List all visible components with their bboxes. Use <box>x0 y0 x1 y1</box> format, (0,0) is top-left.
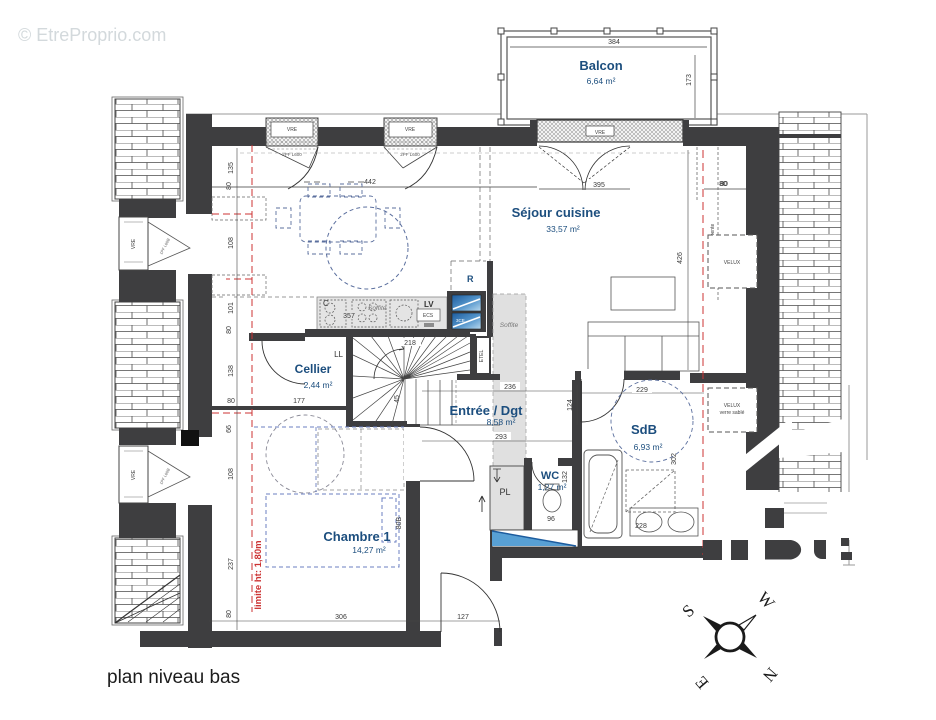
svg-text:6,93 m²: 6,93 m² <box>634 442 663 452</box>
svg-text:VRE: VRE <box>131 469 137 480</box>
svg-text:PL: PL <box>499 487 510 497</box>
svg-text:ETEL: ETEL <box>479 350 485 363</box>
svg-text:LL: LL <box>334 350 343 359</box>
svg-text:Soffite: Soffite <box>368 305 387 312</box>
svg-text:2,44 m²: 2,44 m² <box>304 380 333 390</box>
svg-text:SdB: SdB <box>631 422 657 437</box>
svg-text:426: 426 <box>677 252 684 264</box>
svg-text:124: 124 <box>567 399 574 411</box>
svg-text:Cellier: Cellier <box>295 362 332 376</box>
svg-text:237: 237 <box>228 558 235 570</box>
svg-text:108: 108 <box>228 237 235 249</box>
svg-text:132: 132 <box>562 471 569 483</box>
svg-text:VELUX: VELUX <box>724 260 741 266</box>
svg-text:Entrée / Dgt: Entrée / Dgt <box>450 403 524 418</box>
svg-text:VRE: VRE <box>405 127 416 133</box>
svg-text:Balcon: Balcon <box>579 58 622 73</box>
svg-text:8,58 m²: 8,58 m² <box>487 417 516 427</box>
svg-text:R: R <box>467 274 474 284</box>
svg-text:Soffite: Soffite <box>500 322 519 329</box>
svg-text:66: 66 <box>226 425 233 433</box>
svg-text:127: 127 <box>457 614 469 621</box>
svg-text:VRE: VRE <box>595 130 606 136</box>
svg-text:33,57 m²: 33,57 m² <box>546 224 580 234</box>
svg-text:ECS: ECS <box>423 313 434 319</box>
svg-text:302: 302 <box>671 453 678 465</box>
svg-text:384: 384 <box>608 39 620 46</box>
svg-text:pente: pente <box>710 224 716 237</box>
svg-text:135: 135 <box>228 162 235 174</box>
svg-text:6,64 m²: 6,64 m² <box>587 76 616 86</box>
svg-text:101: 101 <box>228 302 235 314</box>
svg-text:3CE: 3CE <box>456 318 465 323</box>
svg-text:80: 80 <box>226 326 233 334</box>
svg-text:45: 45 <box>394 395 401 403</box>
svg-text:177: 177 <box>293 398 305 405</box>
svg-text:293: 293 <box>495 434 507 441</box>
svg-text:VELUX: VELUX <box>724 403 741 409</box>
svg-text:VRE: VRE <box>287 127 298 133</box>
svg-text:limite ht: 1,80m: limite ht: 1,80m <box>253 540 264 609</box>
svg-text:80: 80 <box>719 181 727 188</box>
svg-text:138: 138 <box>228 365 235 377</box>
svg-text:VRE: VRE <box>131 238 137 249</box>
svg-text:WC: WC <box>541 470 559 482</box>
svg-text:306: 306 <box>335 614 347 621</box>
svg-text:plan niveau bas: plan niveau bas <box>107 667 240 688</box>
svg-text:LV: LV <box>424 300 434 309</box>
svg-text:173: 173 <box>686 74 693 86</box>
svg-text:442: 442 <box>364 179 376 186</box>
svg-text:357: 357 <box>343 313 355 320</box>
svg-text:80B: 80B <box>396 516 403 529</box>
svg-text:80: 80 <box>226 610 233 618</box>
svg-text:80: 80 <box>226 182 233 190</box>
svg-text:© EtreProprio.com: © EtreProprio.com <box>18 25 166 45</box>
svg-text:108: 108 <box>228 468 235 480</box>
svg-text:96: 96 <box>547 516 555 523</box>
svg-text:Séjour cuisine: Séjour cuisine <box>512 205 601 220</box>
svg-text:14,27 m²: 14,27 m² <box>352 545 386 555</box>
svg-text:236: 236 <box>504 384 516 391</box>
svg-text:395: 395 <box>593 182 605 189</box>
svg-text:228: 228 <box>635 523 647 530</box>
svg-text:80: 80 <box>227 398 235 405</box>
svg-text:229: 229 <box>636 387 648 394</box>
svg-text:Chambre 1: Chambre 1 <box>323 529 390 544</box>
svg-text:verre sablé: verre sablé <box>720 410 745 416</box>
svg-text:218: 218 <box>404 340 416 347</box>
